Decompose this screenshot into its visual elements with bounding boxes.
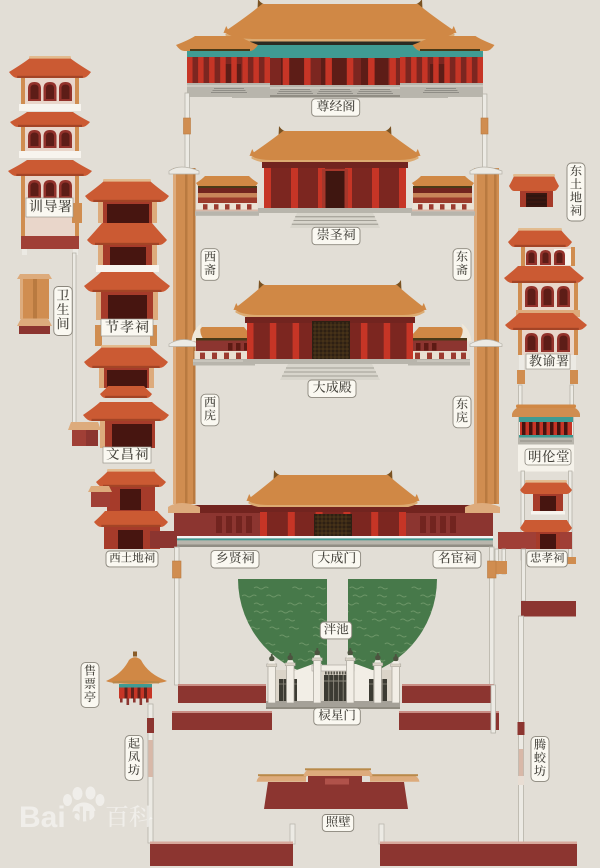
svg-text:Bai: Bai — [19, 801, 66, 834]
svg-text:du: du — [70, 803, 99, 830]
